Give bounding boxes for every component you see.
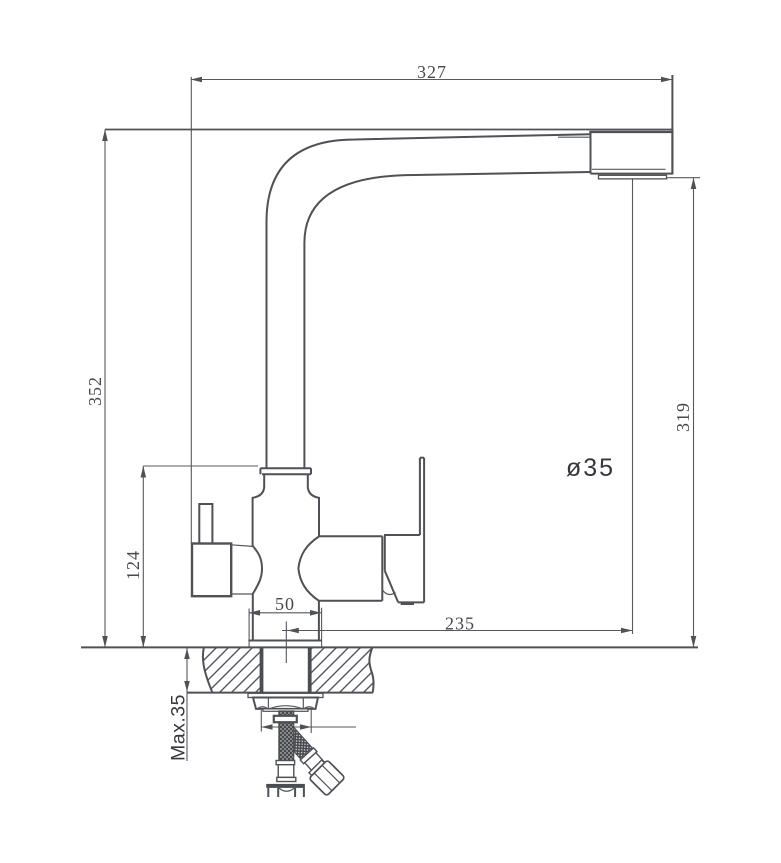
svg-text:352: 352 xyxy=(85,376,105,406)
svg-text:235: 235 xyxy=(445,614,475,634)
svg-text:124: 124 xyxy=(123,550,143,580)
svg-text:ø35: ø35 xyxy=(566,454,615,482)
svg-text:319: 319 xyxy=(673,402,693,432)
svg-text:327: 327 xyxy=(417,62,447,82)
svg-text:Max.35: Max.35 xyxy=(168,694,190,761)
svg-text:50: 50 xyxy=(275,594,295,614)
